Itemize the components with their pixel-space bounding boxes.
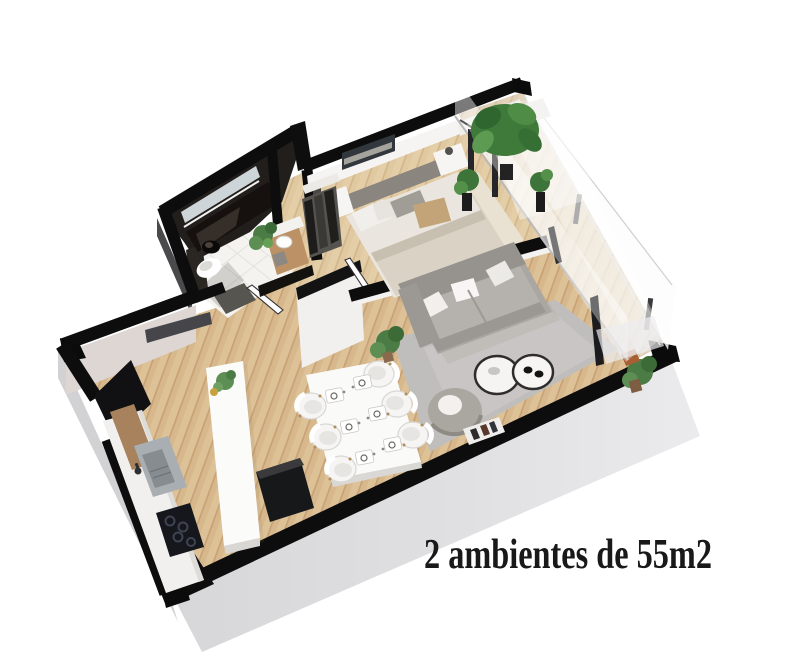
svg-text:2 ambientes de 55m2: 2 ambientes de 55m2 xyxy=(424,532,712,578)
